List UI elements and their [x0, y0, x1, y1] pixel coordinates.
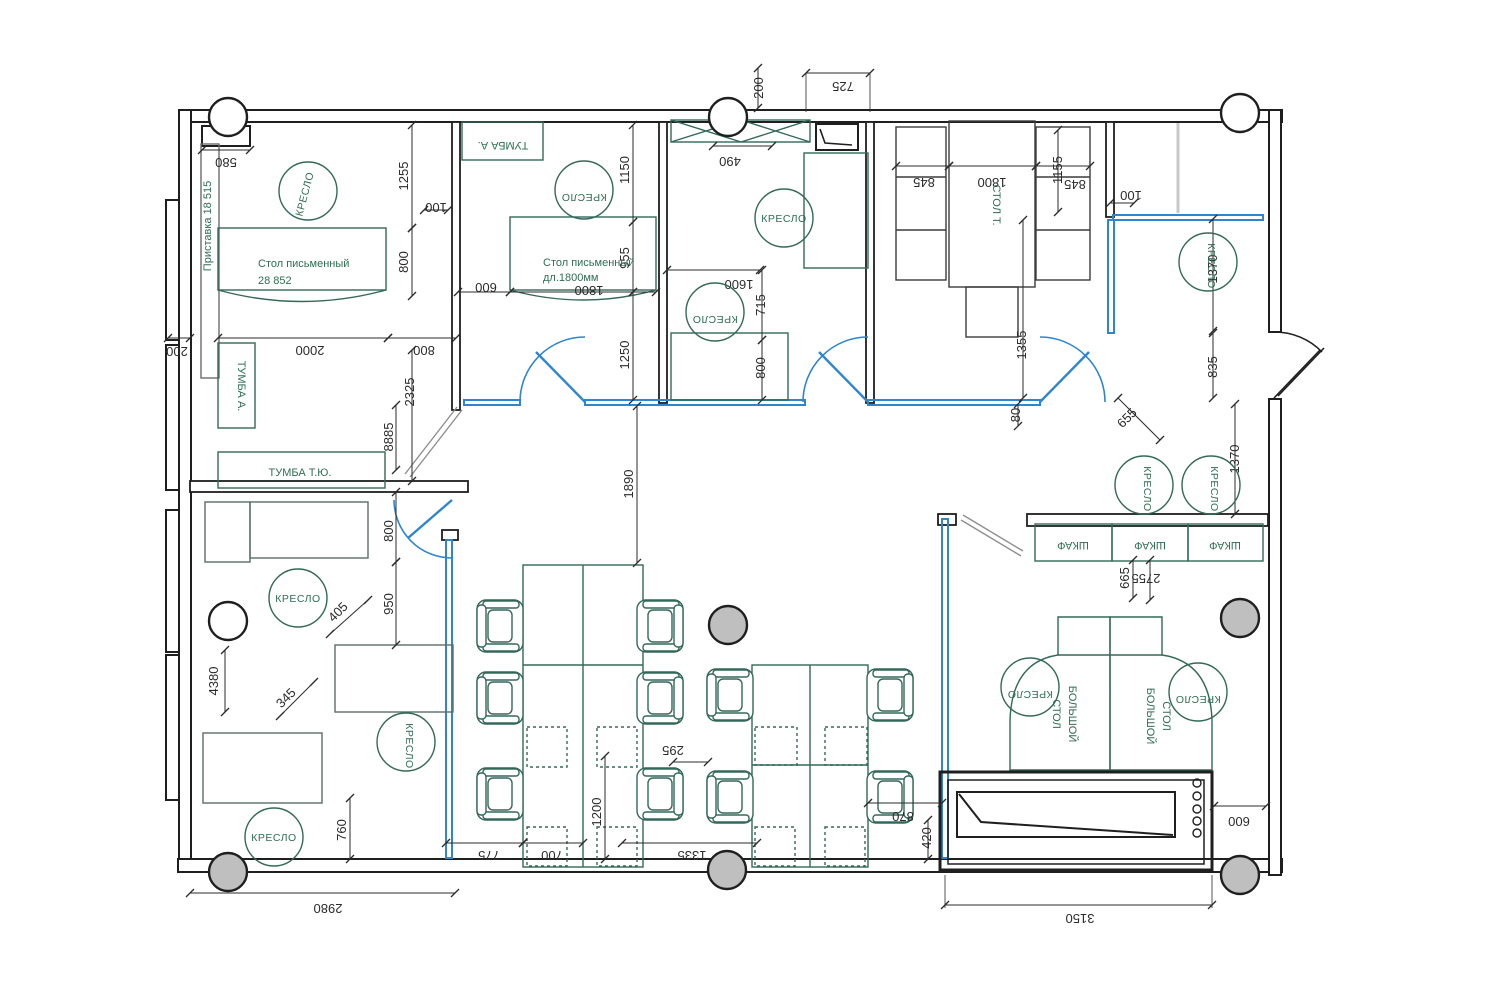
dimension-label: 490 [719, 154, 741, 169]
dimension-label: 580 [215, 155, 237, 170]
armchair-symbol: КРЕСЛО [1169, 663, 1227, 721]
armchair-label: КРЕСЛО [275, 593, 320, 605]
dimension-label: 600 [1228, 814, 1250, 829]
armchair-symbol: КРЕСЛО [1179, 233, 1237, 291]
dimension: 760 [334, 794, 354, 863]
armchair-symbol: КРЕСЛО [269, 569, 327, 627]
dimension-label: 295 [662, 743, 684, 758]
dimension: 1150 [617, 121, 637, 226]
closet-wall [1113, 215, 1263, 220]
desk-bl-1 [335, 645, 453, 712]
dimension-label: 800 [753, 357, 768, 379]
office-chair-symbol [477, 672, 523, 724]
desk-bl-2 [203, 733, 322, 803]
furniture-label: СТОЛ [1160, 701, 1172, 730]
corridor-wall-segment [585, 400, 805, 405]
dimension-tick [364, 596, 372, 604]
dimension: 295 [662, 743, 712, 766]
office-chair-symbol [707, 771, 753, 823]
dimension-label: 845 [1064, 177, 1086, 192]
dimension-label: 870 [892, 809, 914, 824]
conference-table-1 [523, 565, 643, 867]
furniture-label: БОЛЬШОЙ [1066, 686, 1079, 743]
office-chair-symbol [477, 768, 523, 820]
dimension: 2325 [402, 346, 417, 485]
dimension: 800 [396, 224, 416, 300]
door-reception-leaf [961, 520, 1021, 556]
dimension-label: 345 [273, 685, 299, 711]
dimension: 1890 [621, 402, 641, 567]
column-symbol [709, 606, 747, 644]
armchair-symbol: КРЕСЛО [555, 161, 613, 219]
dimension: 2980 [186, 889, 459, 916]
furniture-label: БОЛЬШОЙ [1144, 688, 1157, 745]
furniture-label: ТУМБА Т.Ю. [269, 467, 332, 479]
cabinet-left [896, 127, 946, 280]
dimension-label: 2980 [314, 901, 343, 916]
dimension: 345 [273, 678, 318, 720]
dimension-label: 2755 [1132, 571, 1161, 586]
dimension: 4380 [206, 646, 229, 716]
dimension-label: 1800 [575, 283, 604, 298]
furniture [201, 120, 1263, 870]
armchair-circle [686, 283, 744, 341]
furniture-label: ШКАФ [1057, 539, 1089, 551]
dimension-label: 950 [381, 593, 396, 615]
dimension-label: 1355 [1014, 331, 1029, 360]
entrance-door-arc [1274, 332, 1322, 352]
dimension-label: 1890 [621, 470, 636, 499]
dimension: 800 [384, 334, 460, 358]
furniture-label: ТУМБА А. [235, 361, 247, 412]
office-chair-symbol [707, 669, 753, 721]
dimension: 1600 [663, 266, 764, 292]
door-room2-leaf [536, 352, 585, 402]
office-chair-symbol [637, 768, 683, 820]
armchair-label: КРЕСЛО [1175, 693, 1220, 705]
wall-room1-bottom [190, 481, 468, 492]
dimension: 1370 [1227, 400, 1242, 518]
dimension-label: 1200 [589, 798, 604, 827]
armchair-label: КРЕСЛО [1007, 688, 1052, 700]
dimension: 725 [802, 69, 874, 94]
furniture-label: Приставка 18 515 [202, 181, 214, 271]
dimension: 8885 [381, 401, 400, 474]
dimension-label: 405 [325, 599, 351, 625]
door-room1-leaf [410, 410, 462, 477]
dimension-label: 1150 [617, 156, 632, 184]
dimension-tick [276, 712, 284, 720]
armchair-label: КРЕСЛО [1205, 243, 1217, 288]
dimension: 580 [198, 146, 254, 170]
conference-chairs-layer [477, 600, 913, 823]
armchair-symbol: КРЕСЛО [1115, 456, 1173, 514]
wall-cap [442, 530, 458, 540]
partition-room1-room2 [452, 122, 460, 410]
dimension-label: 2325 [402, 378, 417, 407]
furniture-label: Стол письменный [543, 257, 634, 269]
dimension-label: 4380 [206, 667, 221, 696]
cabinet-bl-1 [205, 502, 250, 562]
dimension-label: 725 [832, 79, 854, 94]
window-sill [166, 655, 179, 800]
wall-right-lower [1269, 399, 1281, 875]
armchair-label: КРЕСЛО [1141, 466, 1153, 511]
armchair-label: КРЕСЛО [1208, 466, 1220, 511]
dimension-label: 800 [381, 520, 396, 542]
dimension-label: 3150 [1066, 911, 1095, 926]
furniture-label: дл.1800мм [543, 272, 599, 284]
door-room4-leaf [1040, 352, 1089, 402]
dimension: 3150 [941, 901, 1216, 926]
dimension-label: 1255 [396, 162, 411, 191]
reception-wall [942, 519, 948, 858]
dimension-label: 8885 [381, 423, 396, 452]
furniture-label: ШКАФ [1134, 539, 1166, 551]
dimension: 1255 [396, 121, 416, 232]
door-reception-leaf [963, 515, 1023, 551]
wall-right-upper [1269, 110, 1281, 332]
dimension-label: 200 [751, 77, 766, 99]
furniture-label: СТОЛ [1050, 699, 1062, 728]
dimension: 600 [454, 280, 514, 296]
dimension-label: 845 [913, 175, 935, 190]
armchair-circle [555, 161, 613, 219]
column-symbol [209, 853, 247, 891]
dimension-label: 800 [413, 343, 435, 358]
office-chair-symbol [637, 600, 683, 652]
wall-monitor-glyph [820, 129, 852, 145]
office-chair-symbol [477, 600, 523, 652]
dimension-label: 100 [1120, 188, 1142, 203]
dimension: 845 [892, 162, 953, 190]
dimension-label: 1335 [678, 848, 707, 863]
furniture-label: ШКАФ [1209, 539, 1241, 551]
interior-walls [190, 122, 1268, 540]
dimension: 100 [420, 200, 452, 215]
column-symbol [709, 98, 747, 136]
dimension-label: 835 [1205, 356, 1220, 378]
furniture-label: ТУМБА А. [478, 139, 529, 151]
corridor-wall-segment [868, 400, 1040, 405]
dimension: 800 [381, 488, 400, 566]
partition-room3-room4 [866, 122, 874, 403]
armchair-symbol: КРЕСЛО [755, 189, 813, 247]
armchair-symbol: КРЕСЛО [686, 283, 744, 341]
table-drawer-blocks [527, 727, 867, 866]
dimension-label: 800 [396, 251, 411, 273]
dimension-label: 100 [425, 200, 447, 215]
armchair-circle [1169, 663, 1227, 721]
dimension: 800 [753, 336, 768, 404]
armchair-symbol: КРЕСЛО [245, 808, 303, 866]
dimension: 200 [751, 64, 766, 112]
dimension: 1200 [589, 752, 609, 863]
dimension: 420 [919, 816, 934, 863]
column-symbol [1221, 856, 1259, 894]
window-sill [166, 345, 179, 490]
dimension-label: 1600 [725, 277, 754, 292]
vestibule-wall [1108, 220, 1114, 333]
dimension-label: 420 [919, 827, 934, 849]
dimension: 835 [1205, 329, 1220, 402]
entrance-door-leaf [1274, 350, 1320, 398]
dimension-tick [326, 630, 334, 638]
dimension-label: 200 [166, 344, 188, 359]
dimension: 2755 [1132, 556, 1161, 604]
desk-room3-side [804, 153, 868, 268]
desk-written-1-front [218, 290, 386, 302]
dimension: 655 [1114, 394, 1164, 444]
dimension: 490 [709, 142, 776, 169]
armchair-label: КРЕСЛО [403, 723, 415, 768]
armchair-label: КРЕСЛО [761, 213, 806, 225]
table-stol-t-return [966, 287, 1018, 337]
armchair-label: КРЕСЛО [251, 832, 296, 844]
floor-plan-sheet: 5801255100800200080023258885200115060018… [0, 0, 1500, 1000]
dimension-label: 600 [475, 280, 497, 295]
dimension: 715 [753, 266, 768, 344]
dimension: 1250 [617, 288, 637, 404]
column-symbol [209, 98, 247, 136]
column-symbol [1221, 599, 1259, 637]
entrance-door-leaf [1278, 348, 1324, 396]
dimension: 600 [1210, 802, 1270, 829]
armchair-label: КРЕСЛО [293, 171, 316, 218]
dimension-label: 715 [753, 294, 768, 316]
reception-counter [940, 772, 1212, 870]
dimension-label: 700 [541, 848, 563, 863]
column-symbol [209, 602, 247, 640]
dimension: 1155 [1050, 126, 1065, 216]
dimension: 2000 [214, 334, 392, 358]
armchair-label: КРЕСЛО [692, 313, 737, 325]
armchair-symbol: КРЕСЛО [279, 162, 337, 220]
office-chair-symbol [867, 669, 913, 721]
blue-partitions [446, 215, 1263, 858]
column-symbol [708, 851, 746, 889]
dimension-tick [310, 678, 318, 686]
desk-room3-bottom [671, 333, 788, 400]
office-chair-symbol [637, 672, 683, 724]
window-sill [166, 510, 179, 652]
door-room1-leaf [405, 407, 457, 474]
corridor-wall-segment [464, 400, 520, 405]
dimension: 1355 [1014, 216, 1029, 402]
furniture-label: 28 852 [258, 275, 292, 287]
dimension-label: 1250 [617, 341, 632, 370]
dimension-label: 1155 [1050, 156, 1065, 184]
floor-plan-drawing: 5801255100800200080023258885200115060018… [0, 0, 1500, 1000]
dimension-label: 775 [478, 848, 500, 863]
dimension-label: 655 [1114, 405, 1140, 431]
column-symbol [1221, 94, 1259, 132]
window-sill [166, 200, 179, 340]
dimension-label: 2000 [296, 343, 325, 358]
dimension-label: 760 [334, 819, 349, 841]
armchair-symbol: КРЕСЛО [1182, 456, 1240, 514]
dimension: 950 [381, 558, 400, 649]
bottomleft-room-wall [446, 540, 452, 858]
dimension-label: 665 [1117, 567, 1132, 589]
armchair-symbol: КРЕСЛО [377, 713, 435, 771]
dimension: 405 [325, 596, 372, 638]
furniture-label: Стол письменный [258, 258, 349, 270]
conference-table-2 [752, 665, 868, 867]
armchair-label: КРЕСЛО [561, 191, 606, 203]
partition-room2-room3 [659, 122, 667, 403]
dimension-label: 80 [1008, 408, 1023, 422]
furniture-label: СТОЛ Т. [990, 184, 1002, 225]
cabinet-bl-2 [250, 502, 368, 558]
door-room3-leaf [819, 352, 868, 402]
cabinet-right [1036, 127, 1090, 280]
